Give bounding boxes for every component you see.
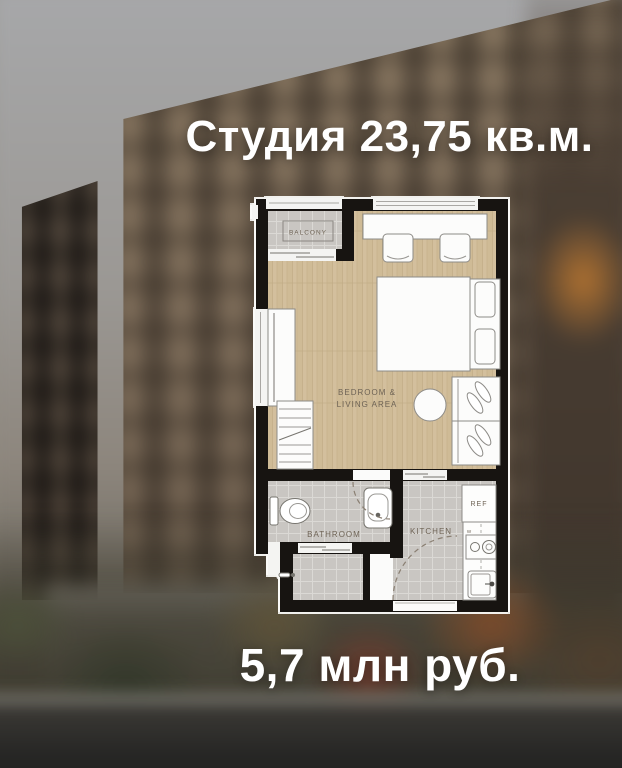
hall-floor	[293, 546, 363, 602]
floor-plan: BALCONY BEDROOM & LIVING AREA BATHROOM K…	[252, 197, 512, 615]
pillow	[475, 329, 495, 364]
wardrobe	[268, 309, 295, 406]
chair	[440, 234, 470, 262]
washbasin-icon	[364, 488, 392, 528]
kitchen-label: KITCHEN	[410, 527, 452, 536]
shelf-unit	[277, 401, 313, 469]
listing-title: Студия 23,75 кв.м.	[157, 112, 622, 162]
toilet-icon	[270, 497, 310, 525]
chair	[383, 234, 413, 262]
main-room-label-line1: BEDROOM &	[338, 388, 396, 397]
road	[0, 704, 622, 768]
coffee-table	[414, 389, 446, 421]
stove-icon	[466, 535, 496, 559]
listing-price: 5,7 млн руб.	[138, 638, 622, 692]
kitchen-sink-icon	[468, 571, 496, 598]
main-room-label-line2: LIVING AREA	[337, 400, 398, 409]
fridge-label: REF	[471, 501, 488, 508]
pillow	[475, 282, 495, 317]
promo-image: Студия 23,75 кв.м.	[0, 0, 622, 768]
sofa	[452, 377, 500, 465]
bed	[377, 277, 470, 371]
entry-corridor	[370, 546, 393, 602]
hall-fitting-icon	[279, 573, 295, 577]
balcony-label: BALCONY	[289, 230, 327, 237]
bathroom-label: BATHROOM	[307, 530, 361, 539]
